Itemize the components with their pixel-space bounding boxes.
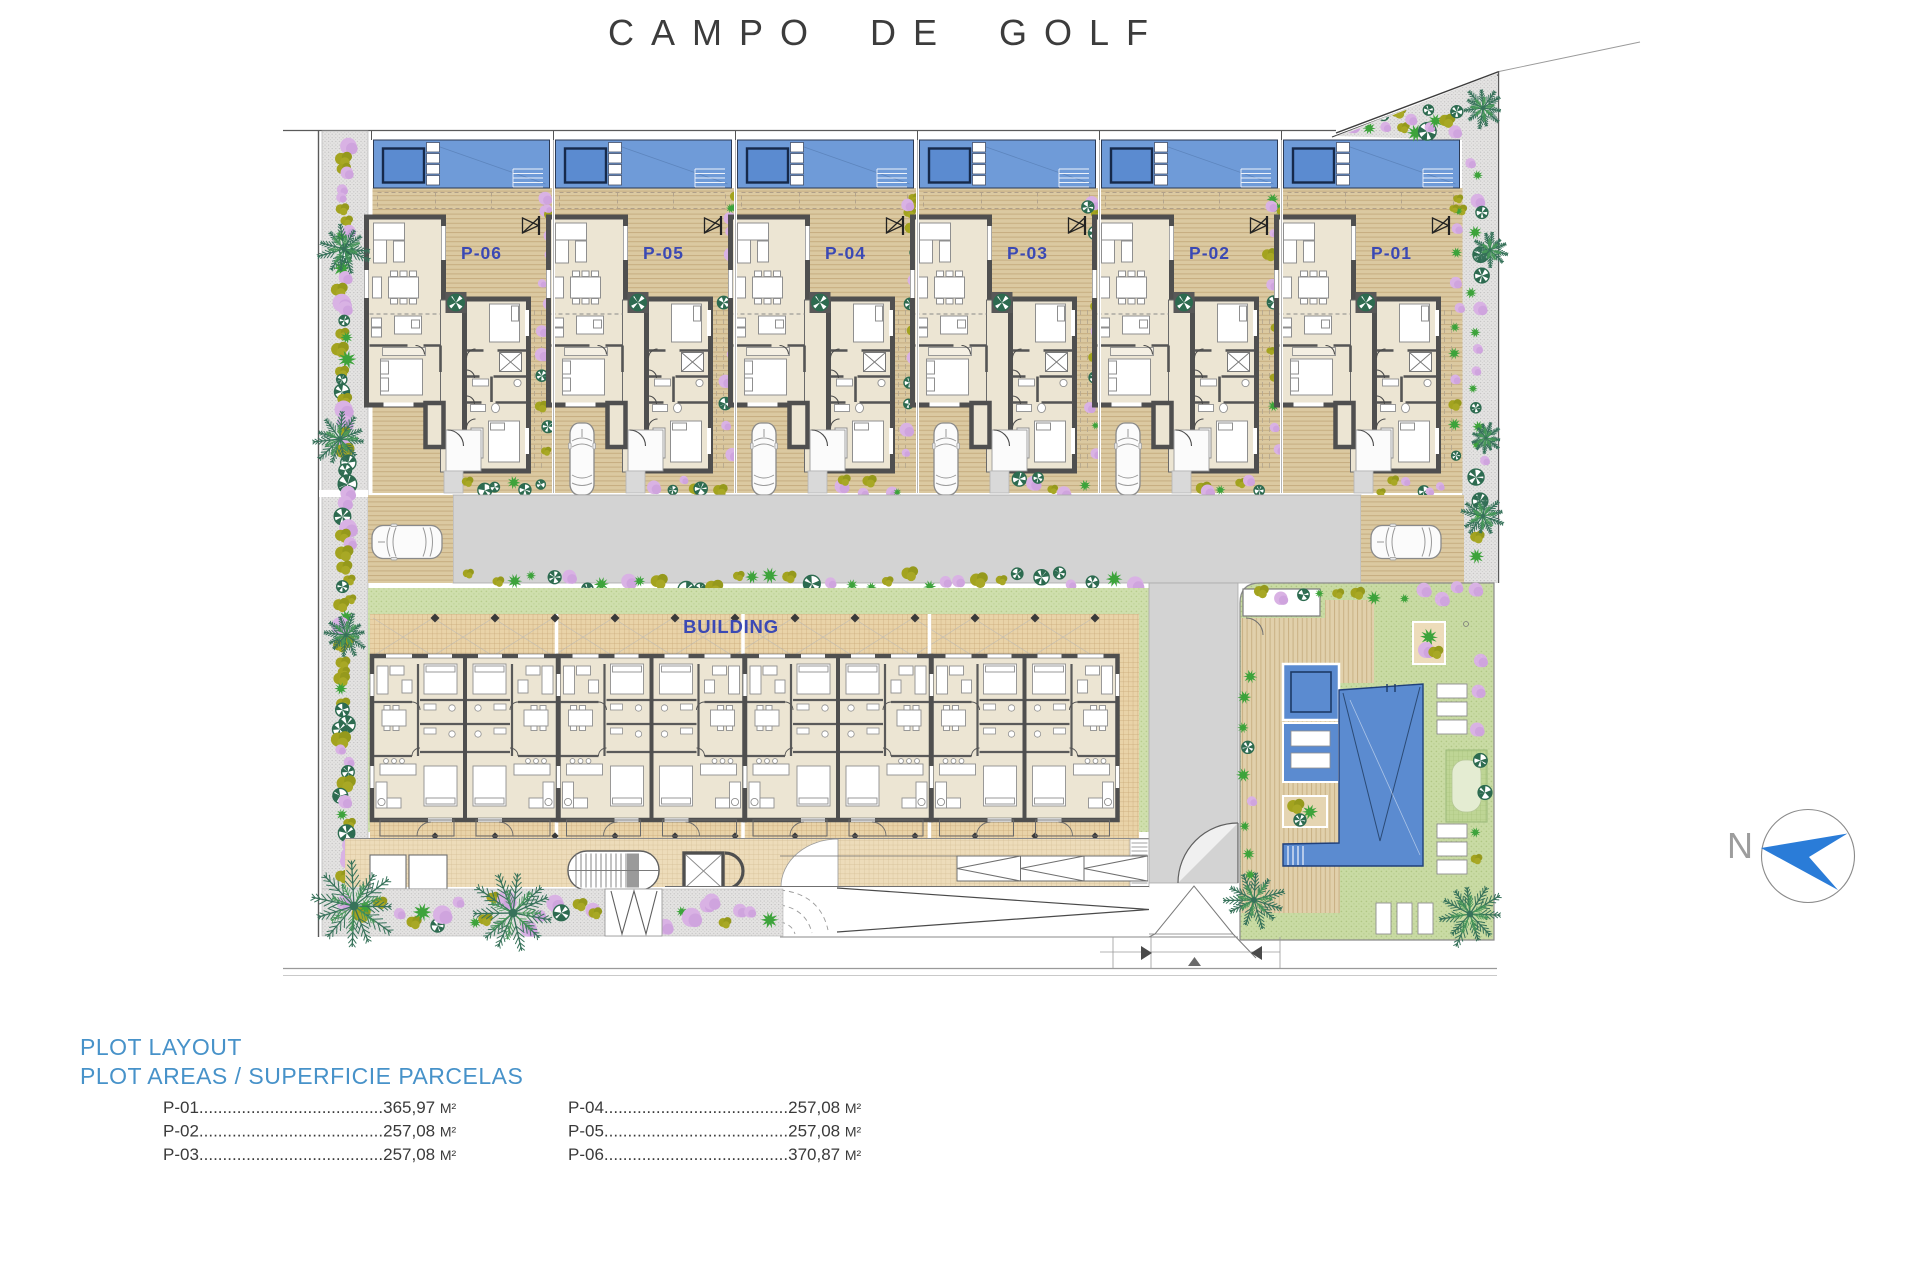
svg-text:P-04..........................: P-04....................................… [568,1098,862,1117]
svg-text:P-04: P-04 [825,243,866,263]
svg-text:P-03: P-03 [1007,243,1048,263]
svg-text:PLOT AREAS / SUPERFICIE PARCEL: PLOT AREAS / SUPERFICIE PARCELAS [80,1063,523,1089]
svg-text:P-01..........................: P-01....................................… [163,1098,457,1117]
svg-text:P-06: P-06 [461,243,502,263]
svg-text:P-06..........................: P-06....................................… [568,1145,862,1164]
svg-text:PLOT LAYOUT: PLOT LAYOUT [80,1034,242,1060]
svg-text:P-02: P-02 [1189,243,1230,263]
svg-text:P-03..........................: P-03....................................… [163,1145,457,1164]
svg-text:P-05..........................: P-05....................................… [568,1122,862,1141]
svg-text:P-01: P-01 [1371,243,1412,263]
svg-text:P-02..........................: P-02....................................… [163,1122,457,1141]
svg-text:BUILDING: BUILDING [683,616,779,637]
svg-text:P-05: P-05 [643,243,684,263]
svg-text:N: N [1727,825,1753,866]
svg-text:CAMPO DE GOLF: CAMPO DE GOLF [608,12,1165,53]
